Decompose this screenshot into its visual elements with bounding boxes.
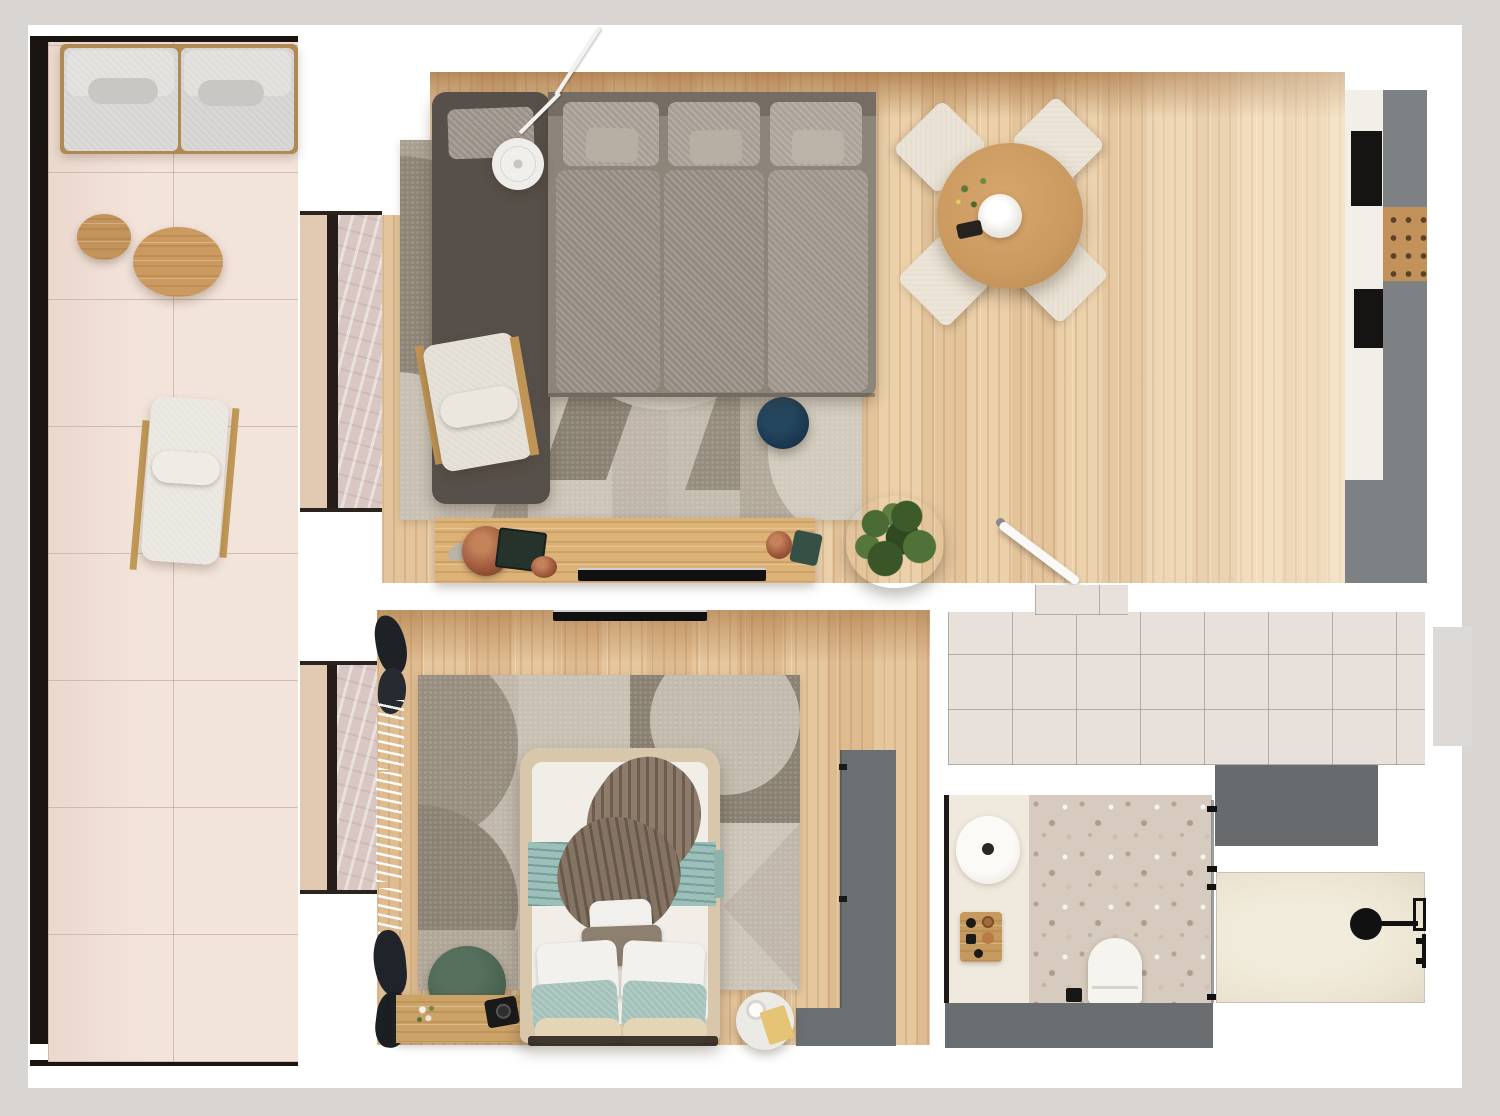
- balcony-table-large: [133, 227, 223, 297]
- tray-item-5: [974, 949, 983, 958]
- hallway-tile-floor: [948, 612, 1425, 765]
- sofa-seat-cushion-1: [556, 170, 660, 392]
- sofa-lumbar-pillow-2: [689, 129, 742, 165]
- kitchen-cabinet-block-bottom: [1345, 480, 1427, 583]
- hallway-closet: [1215, 765, 1378, 846]
- closet-hinge-1: [839, 764, 847, 770]
- tray-item-4: [966, 934, 976, 944]
- console-copper-bowl: [531, 556, 557, 578]
- balcony-door-sill-bedroom: [337, 665, 377, 890]
- tray-item-2: [982, 916, 994, 928]
- bedroom-closet: [840, 750, 896, 1046]
- kitchen-cabinets: [1383, 90, 1427, 480]
- bathroom-bottom-cabinet: [945, 1003, 1213, 1048]
- bathroom-sink-drain: [982, 843, 994, 855]
- bed-foot-shadow: [528, 1036, 718, 1046]
- tray-item-3: [982, 932, 994, 944]
- balcony-door-track-bedroom: [327, 665, 337, 890]
- tray-item-1: [966, 918, 976, 928]
- sofa-seat-cushion-3: [768, 170, 868, 392]
- toilet-seat-line: [1092, 986, 1138, 989]
- shower-arm-bracket: [1413, 898, 1426, 931]
- living-floor-right-light: [1060, 72, 1345, 583]
- kitchen-cutting-board: [1383, 207, 1427, 281]
- sofa-seat-cushion-2: [664, 170, 764, 392]
- wardrobe-hangers-1: [378, 700, 404, 770]
- toilet: [1088, 938, 1142, 1004]
- lounge-chair-roll-pillow: [151, 450, 221, 487]
- sofa-front-edge: [548, 393, 875, 397]
- shower-glass-door: [1211, 800, 1214, 1003]
- glass-door-hinge-top: [1207, 806, 1217, 812]
- outdoor-sofa-pillow-right: [198, 80, 264, 106]
- console-copper-vase-small: [766, 531, 792, 559]
- dining-table-vase: [978, 194, 1022, 238]
- bedroom-tv: [553, 610, 707, 621]
- floor-lamp-head: [492, 138, 544, 190]
- balcony-door-track-living: [327, 215, 338, 510]
- sofa-lumbar-pillow-3: [792, 130, 845, 165]
- wardrobe-hangers-2: [376, 772, 402, 882]
- outdoor-sofa-pillow-left: [88, 78, 158, 104]
- sofa-lumbar-pillow-1: [585, 127, 638, 163]
- kitchen-cooktop: [1351, 131, 1382, 206]
- shower-tray: [1216, 872, 1425, 1003]
- navy-pouf: [757, 397, 809, 449]
- toilet-flush-fitting: [1066, 988, 1082, 1002]
- shower-valve-bar: [1422, 934, 1426, 968]
- bench-flowers: [412, 1000, 442, 1028]
- balcony-door-cap-bottom-living: [300, 508, 382, 512]
- balcony-frame-left: [30, 36, 50, 1044]
- balcony-side-table-small: [77, 214, 131, 260]
- shower-head: [1350, 908, 1382, 940]
- bed-teal-runner-overhang: [714, 850, 724, 898]
- balcony-door-sill-living: [338, 215, 382, 510]
- wardrobe-hangers-3: [378, 888, 402, 934]
- balcony-door-cap-bottom-bedroom: [300, 890, 377, 894]
- bench-camera: [484, 995, 520, 1028]
- hallway-recess: [1433, 627, 1472, 746]
- bedroom-closet-foot: [796, 1008, 896, 1046]
- bathroom-tray: [960, 912, 1002, 962]
- hallway-tile-door-notch: [1035, 585, 1128, 615]
- closet-hinge-2: [839, 896, 847, 902]
- kitchen-sink: [1354, 289, 1383, 348]
- living-tv: [578, 568, 766, 581]
- balcony-door-threshold-bedroom: [300, 665, 327, 890]
- floor-plan-canvas: [0, 0, 1500, 1116]
- balcony-door-threshold-living: [300, 215, 327, 510]
- floor-plant: [846, 496, 944, 588]
- camera-lens: [495, 1003, 512, 1020]
